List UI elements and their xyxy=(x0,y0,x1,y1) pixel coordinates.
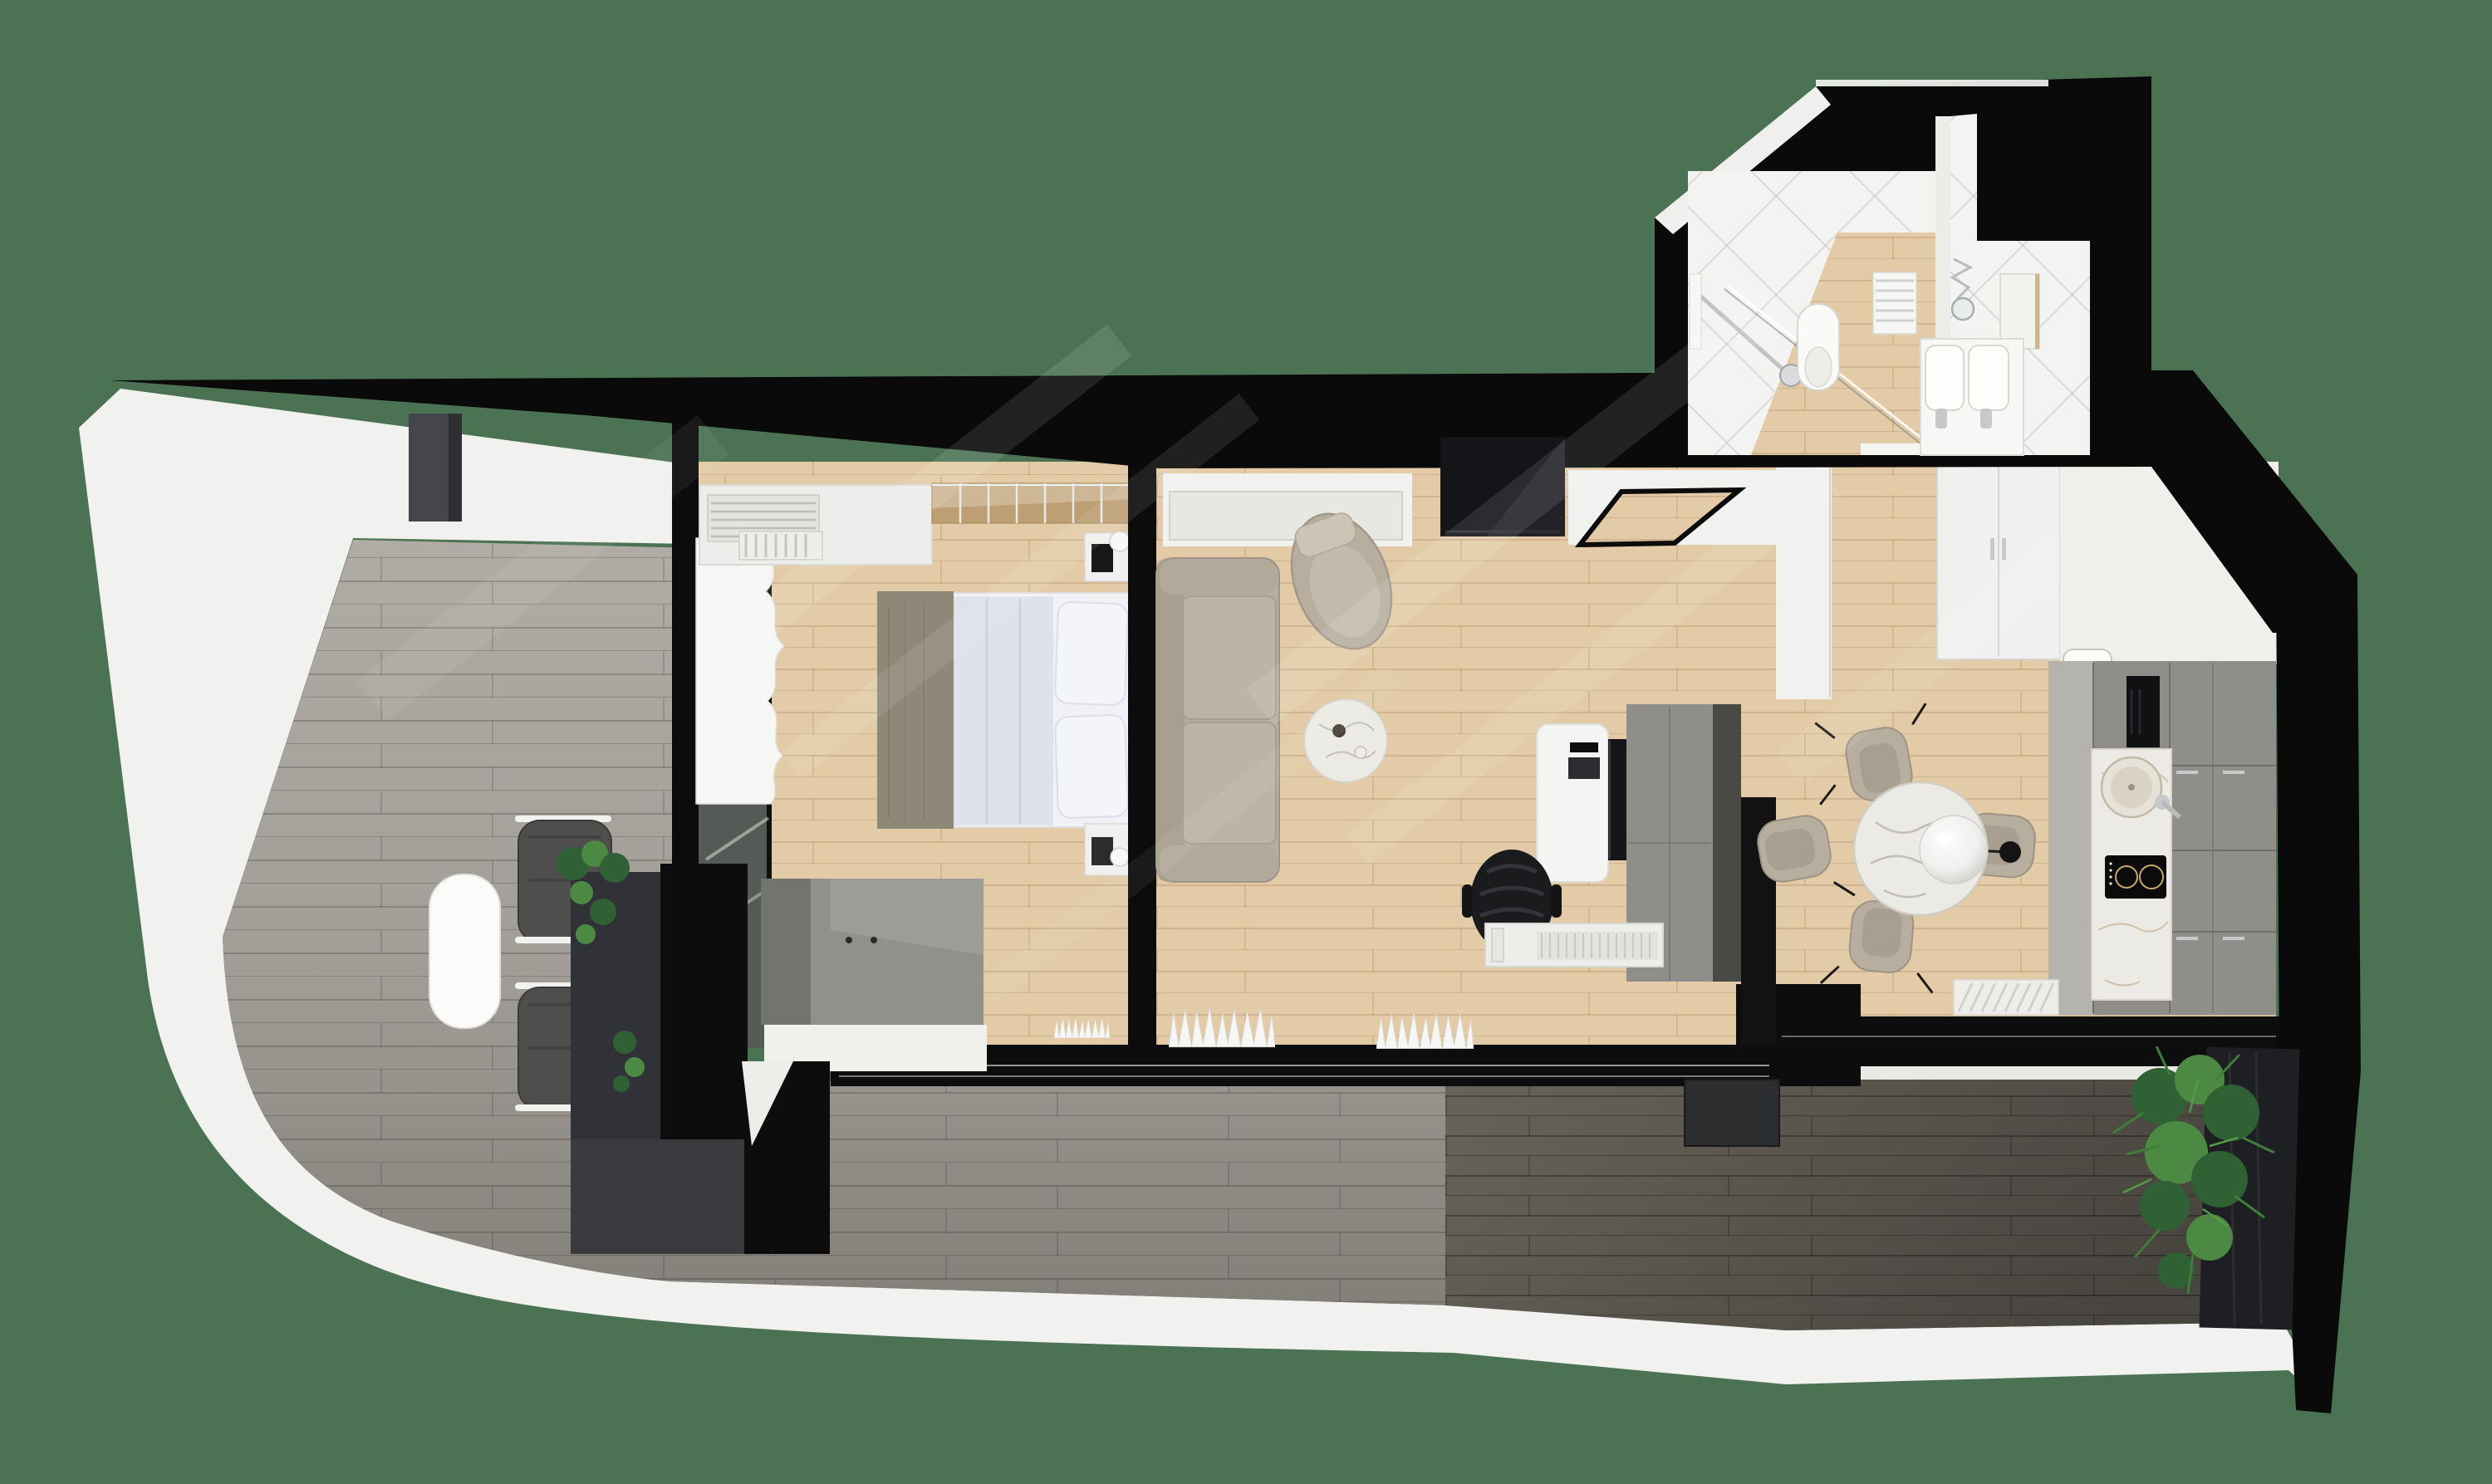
basin xyxy=(1925,345,1964,410)
sofa-armrest xyxy=(1160,560,1278,595)
planter-box xyxy=(1685,1080,1779,1146)
induction-hob xyxy=(2105,855,2166,899)
desk-display-strip xyxy=(1570,742,1598,752)
table-cup xyxy=(1355,747,1366,758)
desk xyxy=(1537,724,1628,882)
outdoor-table xyxy=(429,874,500,1028)
round-mirror xyxy=(1952,298,1974,320)
lamp-canopy xyxy=(1999,841,2021,863)
dining-radiator xyxy=(1954,980,2058,1015)
basin-tap xyxy=(1935,409,1947,429)
monitor xyxy=(1608,739,1628,860)
kitchen-worktop xyxy=(2092,749,2180,1000)
living-radiator xyxy=(1485,923,1663,967)
basin xyxy=(1969,345,2009,410)
bedroom-radiator xyxy=(739,531,822,560)
bedroom-dresser xyxy=(761,879,987,1071)
pillow xyxy=(1055,715,1128,819)
pillow xyxy=(1055,602,1128,706)
floorplan-scene xyxy=(0,0,2492,1484)
basin-tap xyxy=(1980,409,1992,429)
keyboard xyxy=(1568,757,1600,779)
bedroom-living-wall xyxy=(1128,462,1156,1045)
floorplan-svg xyxy=(0,0,2492,1484)
wall-cabinet xyxy=(2000,274,2039,349)
media-console xyxy=(1163,473,1412,546)
bedroom-curtain xyxy=(696,538,784,804)
double-bed xyxy=(877,591,1135,829)
towel-radiator xyxy=(1873,272,1916,334)
nightstand-bottom xyxy=(1085,824,1130,875)
pendant-lamp xyxy=(1920,815,1988,884)
